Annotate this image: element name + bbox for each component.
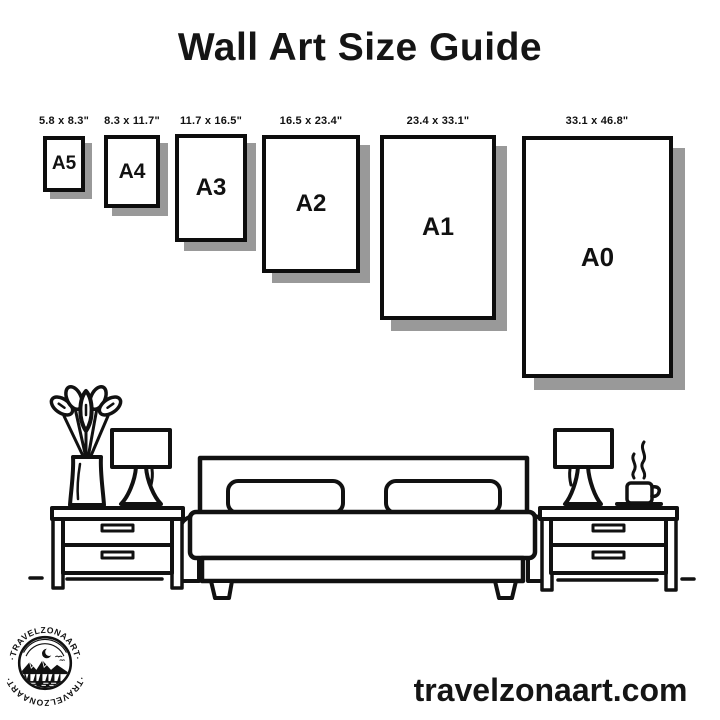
size-label-a0: 33.1 x 46.8" [566, 115, 629, 127]
frame-a3-label: A3 [196, 174, 227, 202]
frame-a4: A4 [104, 135, 160, 208]
frame-a5-label: A5 [52, 153, 76, 175]
bed-leg-right [495, 581, 516, 598]
table-lamp-right-icon [555, 430, 612, 504]
nightstand-left-icon [52, 508, 183, 588]
frame-a0: A0 [522, 136, 673, 378]
bed-base [202, 558, 523, 581]
table-lamp-left-icon [112, 430, 170, 504]
frame-a4-label: A4 [119, 160, 146, 184]
frame-a0-label: A0 [581, 242, 614, 273]
frame-a3: A3 [175, 134, 247, 242]
frame-a5: A5 [43, 136, 85, 192]
size-label-a3: 11.7 x 16.5" [180, 115, 242, 127]
bed-icon [175, 458, 551, 598]
pillow-right [386, 481, 500, 513]
size-label-a2: 16.5 x 23.4" [280, 115, 343, 127]
size-label-a5: 5.8 x 8.3" [39, 115, 89, 127]
website-url: travelzonaart.com [398, 672, 703, 709]
duvet [190, 512, 535, 558]
size-label-a4: 8.3 x 11.7" [104, 115, 160, 127]
vase-icon [70, 457, 104, 505]
nightstand-right-icon [540, 508, 677, 590]
bed-leg-left [211, 581, 232, 598]
frame-a1: A1 [380, 135, 496, 320]
frame-a1-label: A1 [422, 213, 454, 242]
page-title: Wall Art Size Guide [0, 26, 720, 70]
pillow-left [228, 481, 343, 513]
coffee-cup-icon [617, 442, 661, 504]
frame-a2-label: A2 [296, 190, 327, 218]
brand-logo: ·TRAVELZONAART· ·TRAVELZONAART· [2, 620, 88, 706]
size-label-a1: 23.4 x 33.1" [407, 115, 470, 127]
bedroom-scene-illustration [0, 380, 720, 605]
frame-a2: A2 [262, 135, 360, 273]
